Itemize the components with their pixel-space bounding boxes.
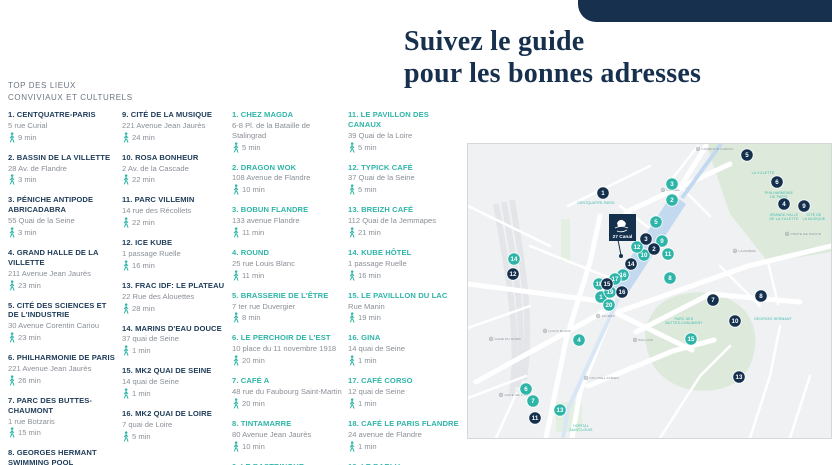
list-item: 16. MK2 QUAI DE LOIRE7 quai de Loire5 mi… bbox=[122, 409, 228, 442]
list-item: 7. PARC DES BUTTES-CHAUMONT1 rue Botzari… bbox=[8, 396, 116, 439]
place-address: 7 ter rue Duvergier bbox=[232, 302, 344, 312]
list-section-header-line1: TOP DES LIEUX bbox=[8, 80, 133, 92]
svg-text:10: 10 bbox=[732, 318, 739, 325]
walk-time: 11 min bbox=[242, 271, 264, 280]
walk-time-row: 1 min bbox=[348, 398, 462, 409]
walking-icon bbox=[122, 217, 130, 228]
cultural-list-column-1: 1. CENTQUATRE-PARIS5 rue Curial9 min2. B… bbox=[8, 110, 116, 465]
place-name: 4. GRAND HALLE DE LA VILLETTE bbox=[8, 248, 116, 268]
walking-icon bbox=[232, 312, 240, 323]
walk-time-row: 19 min bbox=[348, 312, 462, 323]
walk-time: 28 min bbox=[132, 304, 155, 313]
walking-icon bbox=[122, 260, 130, 271]
svg-text:7: 7 bbox=[711, 297, 715, 304]
corner-tab bbox=[578, 0, 832, 22]
list-item: 15. LE PAVILLLON DU LACRue Manin19 min bbox=[348, 291, 462, 324]
walking-icon bbox=[348, 312, 356, 323]
svg-text:16: 16 bbox=[619, 289, 626, 296]
list-item: 4. ROUND25 rue Louis Blanc11 min bbox=[232, 248, 344, 281]
place-address: 39 Quai de la Loire bbox=[348, 131, 462, 141]
place-name: 1. CHEZ MAGDA bbox=[232, 110, 344, 120]
place-address: 14 rue des Récollets bbox=[122, 206, 228, 216]
walk-time-row: 1 min bbox=[122, 345, 228, 356]
walking-icon bbox=[232, 184, 240, 195]
list-item: 6. PHILHARMONIE DE PARIS221 Avenue Jean … bbox=[8, 353, 116, 386]
place-name: 5. BRASSERIE DE L'ÊTRE bbox=[232, 291, 344, 301]
list-item: 3. PÉNICHE ANTIPODE ABRICADABRA55 Quai d… bbox=[8, 195, 116, 238]
svg-text:20: 20 bbox=[606, 302, 613, 309]
svg-text:1: 1 bbox=[599, 294, 603, 301]
walk-time-row: 1 min bbox=[348, 441, 462, 452]
walking-icon bbox=[8, 332, 16, 343]
walking-icon bbox=[122, 388, 130, 399]
list-item: 11. PARC VILLEMIN14 rue des Récollets22 … bbox=[122, 195, 228, 228]
list-item: 2. DRAGON WOK108 Avenue de Flandre10 min bbox=[232, 163, 344, 196]
place-name: 16. MK2 QUAI DE LOIRE bbox=[122, 409, 228, 419]
list-item: 4. GRAND HALLE DE LA VILLETTE211 Avenue … bbox=[8, 248, 116, 291]
place-address: 221 Avenue Jean Jaurès bbox=[122, 121, 228, 131]
walk-time-row: 5 min bbox=[122, 431, 228, 442]
place-address: 133 avenue Flandre bbox=[232, 216, 344, 226]
cultural-list-column-2: 9. CITÉ DE LA MUSIQUE221 Avenue Jean Jau… bbox=[122, 110, 228, 452]
walking-icon bbox=[8, 227, 16, 238]
list-item: 19. LE BARLU10 quai de Seine1 min bbox=[348, 462, 462, 465]
walk-time-row: 16 min bbox=[122, 260, 228, 271]
svg-text:M: M bbox=[697, 147, 699, 151]
walk-time: 20 min bbox=[242, 356, 265, 365]
place-address: 1 rue Botzaris bbox=[8, 417, 116, 427]
walking-icon bbox=[348, 355, 356, 366]
place-address: 10 place du 11 novembre 1918 bbox=[232, 344, 344, 354]
place-name: 1. CENTQUATRE-PARIS bbox=[8, 110, 116, 120]
place-name: 14. MARINS D'EAU DOUCE bbox=[122, 324, 228, 334]
walking-icon bbox=[8, 174, 16, 185]
walk-time-row: 26 min bbox=[8, 375, 116, 386]
svg-text:1: 1 bbox=[601, 190, 605, 197]
list-item: 8. GEORGES HERMANT SWIMMING POOL8-10 Rue… bbox=[8, 448, 116, 465]
place-name: 12. ICE KUBE bbox=[122, 238, 228, 248]
venue-label: 27 Canal bbox=[613, 234, 633, 240]
walk-time: 19 min bbox=[358, 313, 381, 322]
place-name: 9. CITÉ DE LA MUSIQUE bbox=[122, 110, 228, 120]
map-marker: 11 bbox=[662, 248, 674, 260]
walking-icon bbox=[8, 132, 16, 143]
place-address: 112 Quai de la Jemmapes bbox=[348, 216, 462, 226]
walking-icon bbox=[232, 441, 240, 452]
place-name: 6. LE PERCHOIR DE L'EST bbox=[232, 333, 344, 343]
svg-text:4: 4 bbox=[577, 337, 581, 344]
list-item: 12. ICE KUBE1 passage Ruelle16 min bbox=[122, 238, 228, 271]
place-name: 12. TYPICK CAFÉ bbox=[348, 163, 462, 173]
walk-time-row: 1 min bbox=[122, 388, 228, 399]
map-marker: 6 bbox=[520, 383, 532, 395]
svg-text:6: 6 bbox=[524, 386, 528, 393]
place-address: 221 Avenue Jean Jaurès bbox=[8, 364, 116, 374]
place-address: 24 avenue de Flandre bbox=[348, 430, 462, 440]
map-marker: 6 bbox=[771, 176, 783, 188]
place-name: 4. ROUND bbox=[232, 248, 344, 258]
svg-text:12: 12 bbox=[510, 271, 517, 278]
walk-time: 10 min bbox=[242, 185, 265, 194]
walk-time: 16 min bbox=[358, 271, 381, 280]
place-address: 22 Rue des Alouettes bbox=[122, 292, 228, 302]
svg-text:14: 14 bbox=[511, 256, 518, 263]
food-list-column-1: 1. CHEZ MAGDA6-8 Pl. de la Bataille de S… bbox=[232, 110, 344, 465]
svg-text:5: 5 bbox=[745, 152, 749, 159]
walking-icon bbox=[348, 227, 356, 238]
map-marker: 7 bbox=[527, 395, 539, 407]
walk-time: 5 min bbox=[242, 143, 261, 152]
metro-station-label: MCORENTIN CARIOU bbox=[696, 147, 733, 151]
map-area-label: CENTQUATRE-PARIS bbox=[577, 201, 615, 205]
svg-text:9: 9 bbox=[802, 203, 806, 210]
map-marker: 8 bbox=[755, 290, 767, 302]
svg-text:8: 8 bbox=[668, 275, 672, 282]
place-address: 5 rue Curial bbox=[8, 121, 116, 131]
map-area-label: GRANDE HALLEDE LA VILLETTE bbox=[770, 213, 800, 221]
map-marker: 3 bbox=[640, 233, 652, 245]
map-marker: 5 bbox=[741, 149, 753, 161]
list-item: 1. CENTQUATRE-PARIS5 rue Curial9 min bbox=[8, 110, 116, 143]
place-address: 55 Quai de la Seine bbox=[8, 216, 116, 226]
place-name: 7. PARC DES BUTTES-CHAUMONT bbox=[8, 396, 116, 416]
place-name: 3. BOBUN FLANDRE bbox=[232, 205, 344, 215]
walk-time-row: 20 min bbox=[232, 355, 344, 366]
map-marker: 5 bbox=[650, 216, 662, 228]
svg-text:7: 7 bbox=[531, 398, 535, 405]
svg-text:CORENTIN CARIOU: CORENTIN CARIOU bbox=[702, 147, 734, 151]
svg-text:BOLIVAR: BOLIVAR bbox=[639, 338, 654, 342]
place-address: 80 Avenue Jean Jaurès bbox=[232, 430, 344, 440]
guide-page: Suivez le guide pour les bonnes adresses… bbox=[0, 0, 832, 465]
svg-text:9: 9 bbox=[660, 238, 664, 245]
place-name: 8. TINTAMARRE bbox=[232, 419, 344, 429]
walk-time: 1 min bbox=[358, 442, 377, 451]
map-marker: 3 bbox=[666, 178, 678, 190]
walk-time: 11 min bbox=[242, 228, 264, 237]
walk-time: 1 min bbox=[358, 399, 377, 408]
map-marker: 12 bbox=[507, 268, 519, 280]
list-item: 13. FRAC IDF: LE PLATEAU22 Rue des Aloue… bbox=[122, 281, 228, 314]
map-marker: 7 bbox=[707, 294, 719, 306]
place-name: 7. CAFÉ A bbox=[232, 376, 344, 386]
svg-text:M: M bbox=[597, 314, 599, 318]
map-marker: 15 bbox=[601, 278, 613, 290]
place-name: 17. CAFÉ CORSO bbox=[348, 376, 462, 386]
walking-icon bbox=[232, 270, 240, 281]
map-marker: 10 bbox=[729, 315, 741, 327]
walk-time: 26 min bbox=[18, 376, 41, 385]
svg-text:4: 4 bbox=[782, 201, 786, 208]
place-name: 11. PARC VILLEMIN bbox=[122, 195, 228, 205]
walking-icon bbox=[122, 303, 130, 314]
place-address: 6-8 Pl. de la Bataille de Stalingrad bbox=[232, 121, 344, 141]
place-name: 2. DRAGON WOK bbox=[232, 163, 344, 173]
list-item: 10. ROSA BONHEUR2 Av. de la Cascade22 mi… bbox=[122, 153, 228, 186]
walk-time: 24 min bbox=[132, 133, 155, 142]
map-marker: 14 bbox=[625, 258, 637, 270]
place-address: 14 quai de Seine bbox=[348, 344, 462, 354]
walk-time-row: 15 min bbox=[8, 427, 116, 438]
place-name: 14. KUBE HÔTEL bbox=[348, 248, 462, 258]
walk-time-row: 22 min bbox=[122, 174, 228, 185]
food-list-column-2: 11. LE PAVILLON DES CANAUX39 Quai de la … bbox=[348, 110, 462, 465]
walk-time-row: 22 min bbox=[122, 217, 228, 228]
svg-text:2: 2 bbox=[652, 246, 656, 253]
place-address: 25 rue Louis Blanc bbox=[232, 259, 344, 269]
walking-icon bbox=[122, 431, 130, 442]
place-name: 15. LE PAVILLLON DU LAC bbox=[348, 291, 462, 301]
walking-icon bbox=[348, 142, 356, 153]
place-address: 28 Av. de Flandre bbox=[8, 164, 116, 174]
walking-icon bbox=[122, 132, 130, 143]
place-address: 211 Avenue Jean Jaurès bbox=[8, 269, 116, 279]
place-name: 2. BASSIN DE LA VILLETTE bbox=[8, 153, 116, 163]
walk-time: 10 min bbox=[242, 442, 265, 451]
walking-icon bbox=[232, 227, 240, 238]
walk-time-row: 5 min bbox=[348, 184, 462, 195]
list-item: 8. TINTAMARRE80 Avenue Jean Jaurès10 min bbox=[232, 419, 344, 452]
place-address: 30 Avenue Corentin Cariou bbox=[8, 321, 116, 331]
walk-time-row: 1 min bbox=[348, 355, 462, 366]
svg-text:COLONEL FABIEN: COLONEL FABIEN bbox=[590, 376, 619, 380]
page-title-line2: pour les bonnes adresses bbox=[404, 58, 824, 90]
map-marker: 14 bbox=[508, 253, 520, 265]
place-address: Rue Manin bbox=[348, 302, 462, 312]
walk-time-row: 3 min bbox=[8, 227, 116, 238]
svg-text:15: 15 bbox=[604, 281, 611, 288]
place-address: 7 quai de Loire bbox=[122, 420, 228, 430]
walk-time: 1 min bbox=[132, 389, 151, 398]
svg-text:M: M bbox=[585, 376, 587, 380]
svg-text:3: 3 bbox=[670, 181, 674, 188]
metro-station-label: MPORTE DE PANTIN bbox=[785, 232, 821, 236]
map-marker: 2 bbox=[666, 194, 678, 206]
walking-icon bbox=[122, 345, 130, 356]
map-marker: 4 bbox=[778, 198, 790, 210]
list-item: 14. KUBE HÔTEL1 passage Ruelle16 min bbox=[348, 248, 462, 281]
map-marker: 11 bbox=[529, 412, 541, 424]
walk-time: 1 min bbox=[358, 356, 377, 365]
place-name: 13. FRAC IDF: LE PLATEAU bbox=[122, 281, 228, 291]
map-marker: 20 bbox=[603, 299, 615, 311]
svg-text:2: 2 bbox=[670, 197, 674, 204]
walk-time: 22 min bbox=[132, 218, 155, 227]
place-address: 37 quai de Seine bbox=[122, 334, 228, 344]
list-item: 2. BASSIN DE LA VILLETTE28 Av. de Flandr… bbox=[8, 153, 116, 186]
list-item: 5. CITÉ DES SCIENCES ET DE L'INDUSTRIE30… bbox=[8, 301, 116, 344]
walk-time-row: 28 min bbox=[122, 303, 228, 314]
list-section-header-line2: CONVIVIAUX ET CULTURELS bbox=[8, 92, 133, 104]
list-item: 14. MARINS D'EAU DOUCE37 quai de Seine1 … bbox=[122, 324, 228, 357]
map-marker: 13 bbox=[554, 404, 566, 416]
walking-icon bbox=[232, 142, 240, 153]
walk-time: 15 min bbox=[18, 428, 41, 437]
walk-time-row: 21 min bbox=[348, 227, 462, 238]
list-item: 1. CHEZ MAGDA6-8 Pl. de la Bataille de S… bbox=[232, 110, 344, 153]
list-item: 12. TYPICK CAFÉ37 Quai de la Seine5 min bbox=[348, 163, 462, 196]
place-address: 2 Av. de la Cascade bbox=[122, 164, 228, 174]
walk-time-row: 10 min bbox=[232, 184, 344, 195]
walking-icon bbox=[8, 375, 16, 386]
walk-time: 9 min bbox=[18, 133, 37, 142]
list-item: 11. LE PAVILLON DES CANAUX39 Quai de la … bbox=[348, 110, 462, 153]
walk-time: 5 min bbox=[132, 432, 151, 441]
place-name: 10. ROSA BONHEUR bbox=[122, 153, 228, 163]
place-name: 16. GINA bbox=[348, 333, 462, 343]
svg-text:15: 15 bbox=[688, 336, 695, 343]
list-item: 15. MK2 QUAI DE SEINE14 quai de Seine1 m… bbox=[122, 366, 228, 399]
walk-time: 23 min bbox=[18, 333, 41, 342]
svg-text:6: 6 bbox=[775, 179, 779, 186]
place-address: 37 Quai de la Seine bbox=[348, 173, 462, 183]
walk-time-row: 23 min bbox=[8, 280, 116, 291]
place-name: 13. BREIZH CAFÉ bbox=[348, 205, 462, 215]
svg-text:M: M bbox=[786, 232, 788, 236]
svg-text:14: 14 bbox=[628, 261, 635, 268]
svg-text:10: 10 bbox=[641, 252, 648, 259]
walk-time-row: 16 min bbox=[348, 270, 462, 281]
map-marker: 4 bbox=[573, 334, 585, 346]
svg-text:M: M bbox=[734, 249, 736, 253]
walk-time-row: 5 min bbox=[348, 142, 462, 153]
list-item: 5. BRASSERIE DE L'ÊTRE7 ter rue Duvergie… bbox=[232, 291, 344, 324]
walk-time-row: 24 min bbox=[122, 132, 228, 143]
place-address: 1 passage Ruelle bbox=[122, 249, 228, 259]
walk-time: 21 min bbox=[358, 228, 381, 237]
svg-text:M: M bbox=[662, 188, 664, 192]
walk-time: 8 min bbox=[242, 313, 261, 322]
walk-time: 1 min bbox=[132, 346, 151, 355]
walking-icon bbox=[232, 355, 240, 366]
metro-station-label: MCOLONEL FABIEN bbox=[584, 376, 619, 380]
walking-icon bbox=[8, 280, 16, 291]
place-name: 19. LE BARLU bbox=[348, 462, 462, 465]
list-item: 3. BOBUN FLANDRE133 avenue Flandre11 min bbox=[232, 205, 344, 238]
svg-text:13: 13 bbox=[557, 407, 564, 414]
list-item: 13. BREIZH CAFÉ112 Quai de la Jemmapes21… bbox=[348, 205, 462, 238]
place-name: 9. LE BASTRINGUE bbox=[232, 462, 344, 465]
list-item: 9. CITÉ DE LA MUSIQUE221 Avenue Jean Jau… bbox=[122, 110, 228, 143]
svg-text:GARE DU NORD: GARE DU NORD bbox=[495, 337, 522, 341]
walk-time-row: 5 min bbox=[232, 142, 344, 153]
map-marker: 2 bbox=[648, 243, 660, 255]
svg-text:5: 5 bbox=[654, 219, 658, 226]
walk-time-row: 9 min bbox=[8, 132, 116, 143]
svg-text:M: M bbox=[500, 393, 502, 397]
walk-time-row: 20 min bbox=[232, 398, 344, 409]
svg-text:11: 11 bbox=[532, 415, 539, 422]
map-marker: 1 bbox=[597, 187, 609, 199]
place-name: 11. LE PAVILLON DES CANAUX bbox=[348, 110, 462, 130]
place-address: 48 rue du Faubourg Saint-Martin bbox=[232, 387, 344, 397]
place-name: 5. CITÉ DES SCIENCES ET DE L'INDUSTRIE bbox=[8, 301, 116, 321]
walking-icon bbox=[348, 398, 356, 409]
svg-text:M: M bbox=[634, 338, 636, 342]
map-area-label: GEORGES HERMANT bbox=[754, 317, 792, 321]
walking-icon bbox=[232, 398, 240, 409]
walk-time: 23 min bbox=[18, 281, 41, 290]
walk-time-row: 11 min bbox=[232, 227, 344, 238]
svg-text:13: 13 bbox=[736, 374, 743, 381]
place-name: 3. PÉNICHE ANTIPODE ABRICADABRA bbox=[8, 195, 116, 215]
map-marker: 16 bbox=[616, 286, 628, 298]
place-name: 8. GEORGES HERMANT SWIMMING POOL bbox=[8, 448, 116, 465]
walk-time: 5 min bbox=[358, 143, 377, 152]
svg-text:8: 8 bbox=[759, 293, 763, 300]
place-address: 108 Avenue de Flandre bbox=[232, 173, 344, 183]
map-marker: 9 bbox=[798, 200, 810, 212]
walking-icon bbox=[348, 184, 356, 195]
walking-icon bbox=[348, 441, 356, 452]
walk-time: 22 min bbox=[132, 175, 155, 184]
walk-time-row: 23 min bbox=[8, 332, 116, 343]
place-address: 1 passage Ruelle bbox=[348, 259, 462, 269]
map-marker: 15 bbox=[685, 333, 697, 345]
svg-text:LOUIS BLANC: LOUIS BLANC bbox=[549, 329, 572, 333]
list-item: 6. LE PERCHOIR DE L'EST10 place du 11 no… bbox=[232, 333, 344, 366]
walk-time: 20 min bbox=[242, 399, 265, 408]
walk-time-row: 3 min bbox=[8, 174, 116, 185]
list-item: 7. CAFÉ A48 rue du Faubourg Saint-Martin… bbox=[232, 376, 344, 409]
walk-time: 3 min bbox=[18, 228, 37, 237]
svg-text:JAURÈS: JAURÈS bbox=[602, 313, 615, 318]
map-marker: 13 bbox=[733, 371, 745, 383]
walk-time-row: 10 min bbox=[232, 441, 344, 452]
walk-time: 5 min bbox=[358, 185, 377, 194]
list-section-header: TOP DES LIEUX CONVIVIAUX ET CULTURELS bbox=[8, 80, 133, 103]
list-item: 18. CAFÉ LE PARIS FLANDRE24 avenue de Fl… bbox=[348, 419, 462, 452]
list-item: 16. GINA14 quai de Seine1 min bbox=[348, 333, 462, 366]
svg-text:LAUMIÈRE: LAUMIÈRE bbox=[739, 248, 756, 253]
list-item: 9. LE BASTRINGUE67 Quai de la Seine5 min bbox=[232, 462, 344, 465]
place-name: 6. PHILHARMONIE DE PARIS bbox=[8, 353, 116, 363]
metro-station-label: MGARE DU NORD bbox=[489, 337, 521, 341]
walking-icon bbox=[122, 174, 130, 185]
place-address: 12 quai de Seine bbox=[348, 387, 462, 397]
place-address: 14 quai de Seine bbox=[122, 377, 228, 387]
page-title: Suivez le guide pour les bonnes adresses bbox=[404, 26, 824, 90]
svg-text:M: M bbox=[490, 337, 492, 341]
walk-time: 16 min bbox=[132, 261, 155, 270]
svg-text:11: 11 bbox=[665, 251, 672, 258]
list-item: 17. CAFÉ CORSO12 quai de Seine1 min bbox=[348, 376, 462, 409]
walk-time-row: 11 min bbox=[232, 270, 344, 281]
walk-time-row: 8 min bbox=[232, 312, 344, 323]
svg-text:3: 3 bbox=[644, 236, 648, 243]
svg-text:PORTE DE PANTIN: PORTE DE PANTIN bbox=[791, 232, 822, 236]
svg-text:M: M bbox=[544, 329, 546, 333]
place-name: 18. CAFÉ LE PARIS FLANDRE bbox=[348, 419, 462, 429]
map-area-label: LA VILLETTE bbox=[752, 171, 775, 175]
map-marker: 8 bbox=[664, 272, 676, 284]
walking-icon bbox=[348, 270, 356, 281]
city-map: LA VILLETTEPHILHARMONIEDE PARISGRANDE HA… bbox=[467, 143, 832, 439]
place-name: 15. MK2 QUAI DE SEINE bbox=[122, 366, 228, 376]
walking-icon bbox=[8, 427, 16, 438]
page-title-line1: Suivez le guide bbox=[404, 26, 824, 58]
walk-time: 3 min bbox=[18, 175, 37, 184]
svg-text:12: 12 bbox=[634, 244, 641, 251]
